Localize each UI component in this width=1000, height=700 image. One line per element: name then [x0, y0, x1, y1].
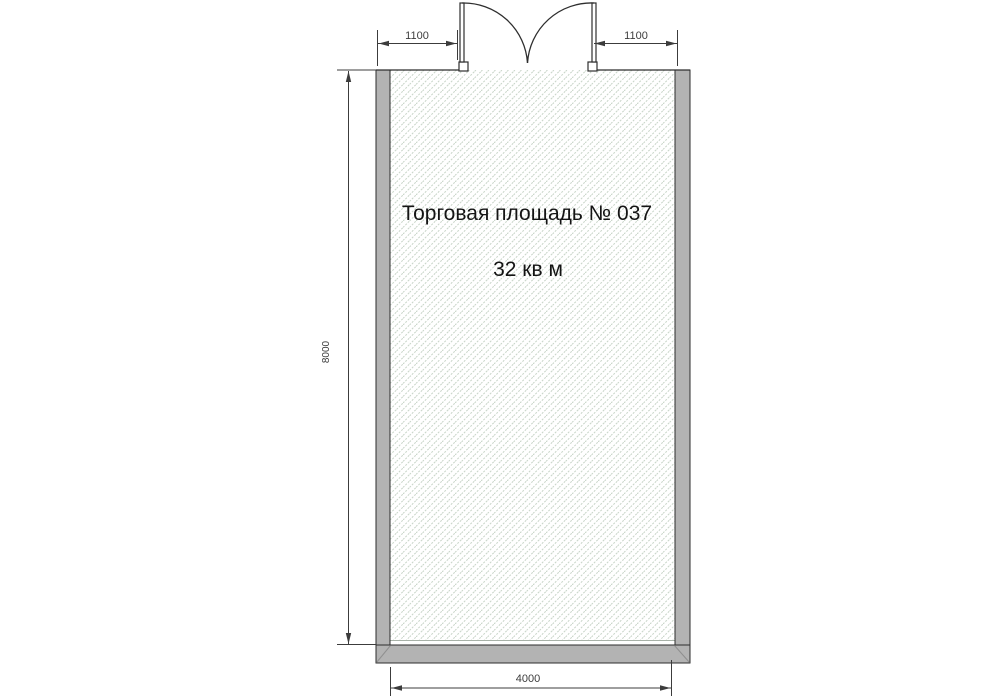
wall-left — [376, 70, 390, 663]
dim-width-label: 4000 — [516, 673, 540, 685]
floor-plan-page: 1100 1100 8000 4000 Т — [0, 0, 1000, 700]
room-area-label: 32 кв м — [493, 258, 563, 281]
wall-right — [675, 70, 690, 663]
dim-door-offset-right: 1100 — [594, 30, 678, 66]
dim-door-offset-right-label: 1100 — [624, 30, 648, 42]
dim-depth-label: 8000 — [321, 340, 332, 363]
floor-plan-svg: 1100 1100 8000 4000 Т — [0, 0, 1000, 700]
dim-width: 4000 — [391, 660, 672, 696]
dim-depth: 8000 — [321, 70, 376, 645]
door-leaf-left — [460, 3, 464, 62]
door-swing-arc-right — [528, 3, 595, 63]
dim-door-offset-left-label: 1100 — [405, 30, 429, 42]
wall-back — [376, 645, 690, 663]
sales-area-hatch — [390, 70, 675, 641]
door-jamb-left — [459, 62, 468, 71]
door-jamb-right — [588, 62, 597, 71]
room-title: Торговая площадь № 037 — [402, 202, 652, 225]
double-door — [459, 3, 597, 71]
door-leaf-right — [592, 3, 596, 62]
door-swing-arc-left — [462, 3, 528, 63]
dim-door-offset-left: 1100 — [378, 30, 458, 66]
